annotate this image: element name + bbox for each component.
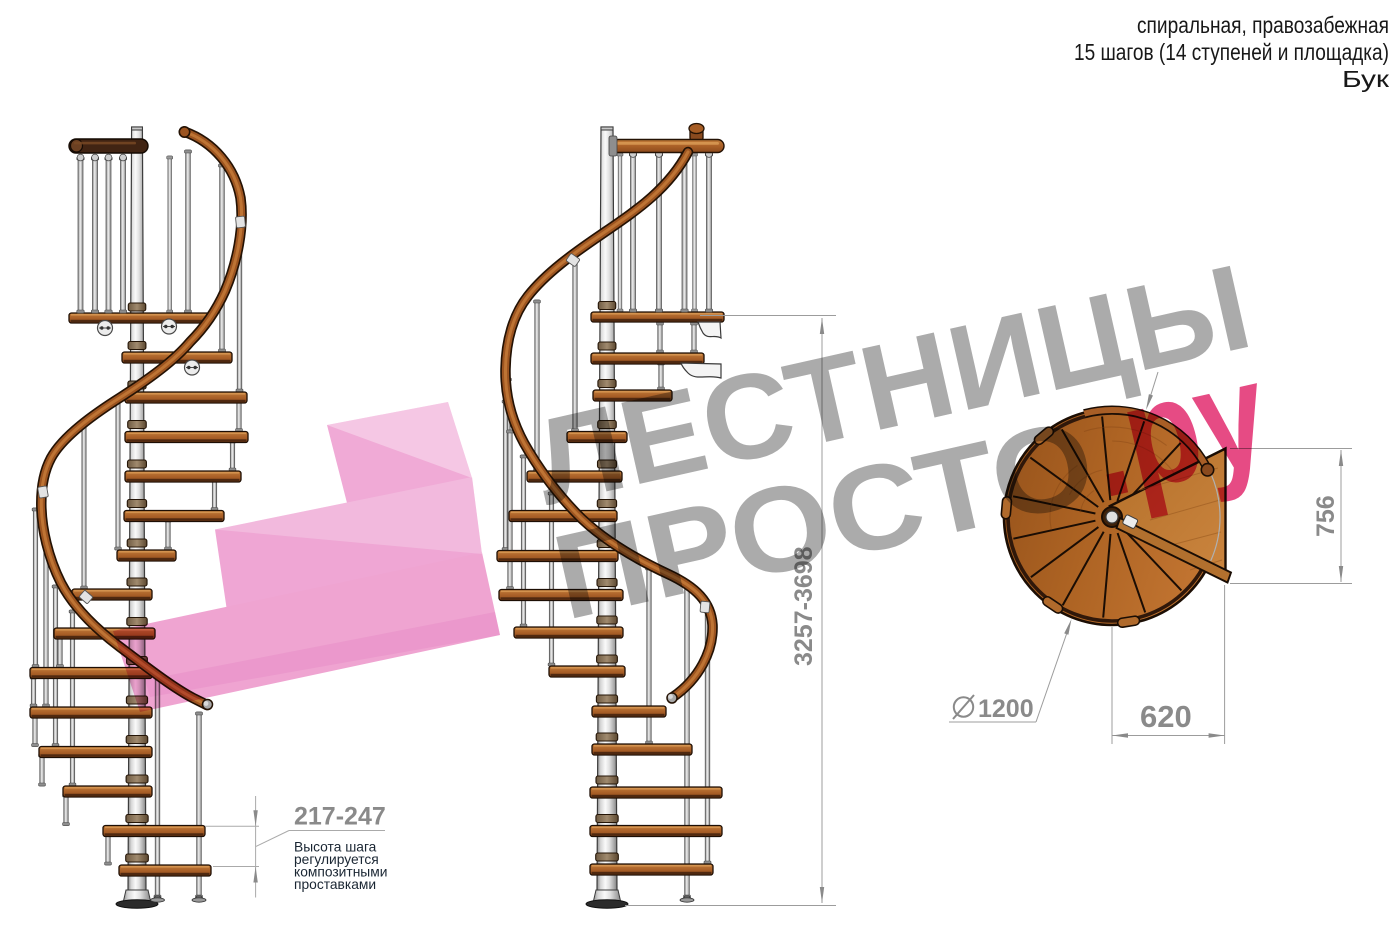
svg-text:15 шагов (14 ступеней и площад: 15 шагов (14 ступеней и площадка) — [1074, 39, 1389, 65]
svg-text:1200: 1200 — [978, 695, 1034, 723]
svg-text:756: 756 — [1312, 495, 1340, 537]
svg-text:217-247: 217-247 — [294, 803, 386, 831]
svg-text:Бук: Бук — [1342, 66, 1390, 92]
svg-text:620: 620 — [1140, 699, 1192, 734]
svg-text:проставками: проставками — [294, 877, 376, 892]
svg-text:спиральная, правозабежная: спиральная, правозабежная — [1137, 12, 1389, 38]
